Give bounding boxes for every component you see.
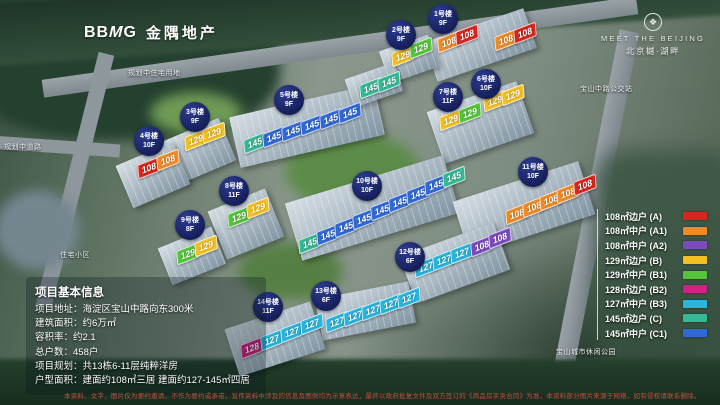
building-badge: 7号楼11F [433, 82, 463, 112]
building-badge: 3号楼9F [180, 102, 210, 132]
legend-color-swatch [683, 241, 707, 249]
legend-item: 108㎡边户 (A) [605, 209, 707, 224]
brand-left: BBMG 金隅地产 [84, 22, 218, 43]
legend-item: 108㎡中户 (A2) [605, 238, 707, 253]
legend-item: 129㎡边户 (B) [605, 253, 707, 268]
brand-right-name: 北京樾·湖畔 [592, 45, 714, 57]
legend-item: 108㎡中户 (A1) [605, 224, 707, 239]
project-info-line: 容积率：约2.1 [35, 331, 257, 345]
project-info-lines: 项目地址：海淀区宝山中路向东300米建筑面积：约6万㎡容积率：约2.1总户数：4… [35, 303, 257, 388]
project-info-line: 项目规划：共13栋6-11层纯粹洋房 [35, 360, 257, 374]
building-badge: 9号楼8F [175, 210, 205, 240]
legend-color-swatch [683, 227, 707, 235]
map-label: 宝山中路公交站 [580, 84, 633, 94]
project-info-panel: 项目基本信息 项目地址：海淀区宝山中路向东300米建筑面积：约6万㎡容积率：约2… [26, 277, 266, 395]
disclaimer-text: 本资料、文字、图片仅为要约邀请，不作为要约或承诺，宣传资料中涉及的信息及图例均为… [64, 390, 701, 400]
building-badge: 8号楼11F [219, 176, 249, 206]
legend-item: 129㎡中户 (B1) [605, 267, 707, 282]
legend-item-label: 108㎡中户 (A2) [605, 239, 667, 252]
building-badge: 10号楼10F [352, 171, 382, 201]
legend-color-swatch [683, 300, 707, 308]
building-badge: 11号楼10F [518, 157, 548, 187]
project-info-line: 项目地址：海淀区宝山中路向东300米 [35, 303, 257, 317]
building-badge: 1号楼9F [428, 4, 458, 34]
legend-item-label: 145㎡中户 (C1) [605, 327, 667, 340]
aerial-masterplan-poster: 1081081081081号楼9F1291292号楼9F1291293号楼9F1… [0, 0, 720, 405]
legend-item: 145㎡边户 (C) [605, 311, 707, 326]
legend-color-swatch [683, 314, 707, 322]
legend-item: 145㎡中户 (C1) [605, 326, 707, 341]
legend-color-swatch [683, 212, 707, 220]
map-label: 规划中住宅用地 [128, 68, 181, 78]
brand-left-name: 金隅地产 [146, 22, 218, 43]
project-info-title: 项目基本信息 [35, 284, 257, 300]
legend-item-label: 145㎡边户 (C) [605, 312, 662, 325]
map-label: 住宅小区 [60, 250, 90, 260]
legend-color-swatch [683, 271, 707, 279]
legend-color-swatch [683, 329, 707, 337]
brand-right: ❖ MEET THE BEIJING 北京樾·湖畔 [592, 13, 714, 57]
building-badge: 4号楼10F [134, 126, 164, 156]
unit-type-legend: 108㎡边户 (A)108㎡中户 (A1)108㎡中户 (A2)129㎡边户 (… [597, 209, 707, 340]
building-badge: 2号楼9F [386, 20, 416, 50]
legend-item-label: 129㎡边户 (B) [605, 254, 662, 267]
legend-rows: 108㎡边户 (A)108㎡中户 (A1)108㎡中户 (A2)129㎡边户 (… [605, 209, 707, 340]
building-badge: 12号楼6F [395, 242, 425, 272]
legend-item: 127㎡中户 (B3) [605, 297, 707, 312]
legend-color-swatch [683, 256, 707, 264]
beijing-emblem-icon: ❖ [644, 13, 662, 31]
bbmg-logo: BBMG [84, 24, 137, 42]
legend-item-label: 128㎡边户 (B2) [605, 283, 667, 296]
project-info-line: 户型面积：建面约108㎡三居 建面约127-145㎡四居 [35, 374, 257, 388]
building-badge: 5号楼9F [274, 85, 304, 115]
project-info-line: 总户数：458户 [35, 346, 257, 360]
building-badge: 13号楼6F [311, 281, 341, 311]
brand-right-tagline: MEET THE BEIJING [592, 34, 714, 43]
map-label: 宝山城市休闲公园 [556, 347, 616, 357]
legend-item: 128㎡边户 (B2) [605, 282, 707, 297]
building-badge: 6号楼10F [471, 69, 501, 99]
legend-item-label: 108㎡边户 (A) [605, 210, 662, 223]
legend-item-label: 129㎡中户 (B1) [605, 268, 667, 281]
project-info-line: 建筑面积：约6万㎡ [35, 317, 257, 331]
legend-item-label: 127㎡中户 (B3) [605, 297, 667, 310]
map-label: 规划中道路 [4, 142, 42, 152]
legend-color-swatch [683, 285, 707, 293]
legend-item-label: 108㎡中户 (A1) [605, 224, 667, 237]
